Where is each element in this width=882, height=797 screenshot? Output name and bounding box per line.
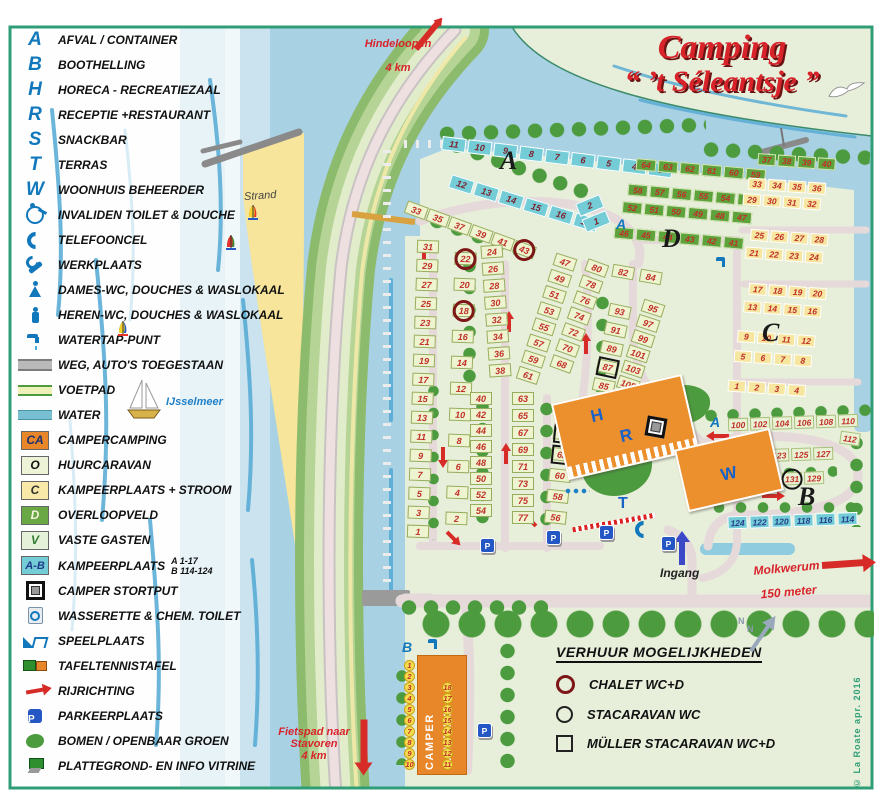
camper-pitch: 13 xyxy=(442,737,453,748)
plot: 17 xyxy=(748,283,767,296)
plot: 12 xyxy=(448,174,475,194)
plot: 63 xyxy=(512,392,534,405)
legend-key xyxy=(12,607,58,624)
plot: 48 xyxy=(470,456,492,469)
parking-icon: P xyxy=(546,530,561,545)
plot: 57 xyxy=(649,185,670,199)
parking-icon: P xyxy=(480,538,495,553)
plot: 54 xyxy=(715,191,736,205)
plot: 40 xyxy=(470,392,492,405)
plot: 36 xyxy=(488,346,511,361)
plot: 31 xyxy=(417,240,439,254)
plot: 13 xyxy=(473,182,500,202)
parking-icon: P xyxy=(661,536,676,551)
legend-icon xyxy=(18,410,52,420)
plot: 49 xyxy=(547,269,572,288)
plot: 54 xyxy=(470,504,492,517)
plot: 69 xyxy=(512,443,534,456)
legend-item: S SNACKBAR xyxy=(12,127,292,152)
plot: 118 xyxy=(793,513,813,527)
plot: 1 xyxy=(727,380,746,393)
plot: 18 xyxy=(768,284,787,297)
parking-icon: P xyxy=(599,525,614,540)
plot-112: 112 xyxy=(839,431,861,447)
plot: 23 xyxy=(414,316,436,330)
direction-arrow xyxy=(504,450,508,464)
legend-item: O HUURCARAVAN xyxy=(12,453,292,478)
plot: 77 xyxy=(512,511,534,524)
plot: 5 xyxy=(596,155,622,172)
plot: 125 xyxy=(791,447,811,461)
plot: 106 xyxy=(794,415,814,429)
legend-item: V VASTE GASTEN xyxy=(12,528,292,553)
plot: 21 xyxy=(745,246,764,259)
building-t-letter: T xyxy=(618,495,628,513)
legend-item: PLATTEGROND- EN INFO VITRINE xyxy=(12,753,292,778)
plot: 6 xyxy=(447,460,469,474)
plot: 75 xyxy=(512,494,534,507)
plot: 67 xyxy=(512,426,534,439)
legend-key: H xyxy=(12,79,58,101)
plot: 53 xyxy=(537,301,562,320)
plot: 24 xyxy=(805,251,824,264)
plot: 30 xyxy=(762,195,781,208)
legend-label: RIJRICHTING xyxy=(58,684,135,698)
plot: 6 xyxy=(754,351,773,364)
plot: 76 xyxy=(573,290,598,310)
boat-slips xyxy=(383,150,391,590)
plot: 116 xyxy=(815,513,835,527)
legend-icon xyxy=(28,607,43,624)
legend-key: T xyxy=(12,154,58,176)
section-c-plots: 37383940 33343536 29303132 25262728 2122… xyxy=(726,152,864,420)
plot: 52 xyxy=(622,201,643,215)
plot: 43 xyxy=(512,240,537,260)
page-title: Camping “ ’t Séleantsje ” xyxy=(578,30,866,97)
plot: 2 xyxy=(747,381,766,394)
legend-item: TELEFOONCEL xyxy=(12,227,292,252)
plot: 3 xyxy=(767,382,786,395)
watertap-icon xyxy=(716,257,728,269)
plot: 55 xyxy=(693,189,714,203)
plot: 70 xyxy=(555,338,580,358)
plot: 25 xyxy=(415,297,437,311)
plot: 15 xyxy=(411,392,433,406)
legend-label: RECEPTIE +RESTAURANT xyxy=(58,108,210,122)
camper-pitch: 2 xyxy=(404,671,415,682)
plot: 23 xyxy=(785,249,804,262)
plot: 36 xyxy=(807,182,826,195)
plot: 16 xyxy=(547,205,574,225)
legend-icon xyxy=(27,333,43,347)
plot: 124 xyxy=(727,516,747,530)
plot: 114 xyxy=(837,512,857,526)
label-stavoren: Fietspad naar Stavoren 4 km xyxy=(268,726,360,762)
legend-key: S xyxy=(12,129,58,151)
plot: 33 xyxy=(748,177,767,190)
plot: 64 xyxy=(636,158,657,172)
camper-pitch: 10 xyxy=(404,759,415,770)
legend-label: CAMPERCAMPING xyxy=(58,433,167,447)
legend-label: KAMPEERPLAATS + STROOM xyxy=(58,483,231,497)
camper-pitch: 6 xyxy=(404,715,415,726)
plot: 59 xyxy=(521,350,546,369)
legend-item: A-B KAMPEERPLAATS A 1-17 B 114-124 xyxy=(12,553,292,578)
boothelling-letter: B xyxy=(402,639,412,655)
plot-row: 100102104106108110 xyxy=(728,414,858,432)
camper-pitch: 3 xyxy=(404,682,415,693)
legend-icon xyxy=(26,687,44,694)
legend-key xyxy=(12,281,58,298)
plot: 35 xyxy=(788,180,807,193)
legend-key xyxy=(12,307,58,324)
plot: 10 xyxy=(467,139,493,156)
plot: 6 xyxy=(570,152,596,169)
section-b-letter: B xyxy=(798,482,815,512)
plot: 1 xyxy=(407,525,429,539)
plot: 120 xyxy=(771,514,791,528)
legend-key: CA xyxy=(12,431,58,450)
plot: 30 xyxy=(484,295,507,310)
plot: 19 xyxy=(788,286,807,299)
legend-item: CA CAMPERCAMPING xyxy=(12,428,292,453)
legend-label: WOONHUIS BEHEERDER xyxy=(58,183,204,197)
plot: 50 xyxy=(666,205,687,219)
plot: 55 xyxy=(532,317,557,336)
camper-pitch: 11 xyxy=(442,759,453,770)
camper-pitch: 4 xyxy=(404,693,415,704)
legend-key xyxy=(12,634,58,648)
legend-icon xyxy=(26,734,44,748)
legend-label: PARKEERPLAATS xyxy=(58,709,163,723)
plot: 3 xyxy=(407,506,429,520)
legend-key: V xyxy=(12,531,58,550)
plot: 21 xyxy=(413,335,435,349)
legend-key xyxy=(12,758,58,773)
plot: 26 xyxy=(482,261,505,276)
compass: N N xyxy=(738,616,780,660)
afval-letter: A xyxy=(710,414,720,430)
camper-pitch: 14 xyxy=(442,726,453,737)
plot: 15 xyxy=(523,197,550,217)
plot: 11 xyxy=(777,333,796,346)
legend-label: DAMES-WC, DOUCHES & WASLOKAAL xyxy=(58,283,285,297)
legend-label: HUURCARAVAN xyxy=(58,458,151,472)
legend-icon xyxy=(23,634,47,648)
plot: 57 xyxy=(526,333,551,352)
legend-item: WASSERETTE & CHEM. TOILET xyxy=(12,603,292,628)
camper-pitch: 1 xyxy=(404,660,415,671)
copyright: © La Roate apr. 2016 xyxy=(852,620,862,788)
plot-row: 29303132 xyxy=(743,193,822,210)
plot: 11 xyxy=(441,136,467,153)
rental-item: STACARAVAN WC xyxy=(556,706,775,723)
legend-item: D OVERLOOPVELD xyxy=(12,503,292,528)
legend-key xyxy=(12,232,58,248)
legend-label: CAMPER STORTPUT xyxy=(58,584,178,598)
plot: 38 xyxy=(489,363,512,378)
plot: 5 xyxy=(408,487,430,501)
plot: 50 xyxy=(470,472,492,485)
legend-key xyxy=(12,581,58,600)
legend-key xyxy=(12,359,58,371)
plot: 8 xyxy=(793,354,812,367)
legend-key: A xyxy=(12,29,58,51)
rental-label: MÜLLER STACARAVAN WC+D xyxy=(587,736,775,751)
camper-pitch: 8 xyxy=(404,737,415,748)
plot: 12 xyxy=(450,382,472,396)
legend-icon xyxy=(27,758,44,773)
plot: 65 xyxy=(512,409,534,422)
plot: 16 xyxy=(803,305,822,318)
plot: 48 xyxy=(709,209,730,223)
plot: 22 xyxy=(454,252,476,266)
plot-column: 4042444648505254 xyxy=(470,392,492,517)
rental-symbol xyxy=(556,675,575,694)
plot: 24 xyxy=(480,244,503,259)
stortput-icon xyxy=(644,415,667,438)
plot-row: 25262728 xyxy=(750,229,829,246)
plot: 51 xyxy=(542,285,567,304)
legend-key: W xyxy=(12,179,58,201)
plot: 5 xyxy=(734,350,753,363)
legend-item: PARKEERPLAATS xyxy=(12,703,292,728)
plot: 42 xyxy=(470,408,492,421)
legend-icon xyxy=(29,307,41,324)
label-ijsselmeer: IJsselmeer xyxy=(166,396,223,408)
plot: 12 xyxy=(797,334,816,347)
plot: 9 xyxy=(737,330,756,343)
legend-icon xyxy=(27,232,43,248)
afval-letter: A xyxy=(616,216,626,232)
legend-item: WATERTAP-PUNT xyxy=(12,328,292,353)
plot: 34 xyxy=(768,179,787,192)
camper-pitch: 17 xyxy=(442,693,453,704)
legend-label: OVERLOOPVELD xyxy=(58,508,158,522)
legend-icon xyxy=(18,385,52,396)
plot: 14 xyxy=(451,356,473,370)
legend-label: VOETPAD xyxy=(58,383,115,397)
plot: 122 xyxy=(749,515,769,529)
plot: 7 xyxy=(544,149,570,166)
plot: 10 xyxy=(449,408,471,422)
plot: 13 xyxy=(411,411,433,425)
legend-item: B BOOTHELLING xyxy=(12,52,292,77)
plot: 100 xyxy=(728,418,748,432)
legend-key xyxy=(12,333,58,347)
plot: 62 xyxy=(679,162,700,176)
plot: 7 xyxy=(773,353,792,366)
plot-row: 5678 xyxy=(734,350,813,367)
plot: 14 xyxy=(498,190,525,210)
plot: 42 xyxy=(701,234,722,248)
plot: 18 xyxy=(453,304,475,318)
legend-label: WATERTAP-PUNT xyxy=(58,333,160,347)
plot-row: 21222324 xyxy=(745,246,824,263)
hedge xyxy=(398,600,548,615)
legend-item: CAMPER STORTPUT xyxy=(12,578,292,603)
legend-label: KAMPEERPLAATS xyxy=(58,559,165,573)
plot: 31 xyxy=(782,196,801,209)
legend-icon xyxy=(26,256,44,274)
plot: 71 xyxy=(512,460,534,473)
plot: 28 xyxy=(810,233,829,246)
plot: 78 xyxy=(578,274,603,294)
legend-icon xyxy=(26,581,45,600)
plot: 16 xyxy=(452,330,474,344)
plot: 28 xyxy=(483,278,506,293)
legend-label: WATER xyxy=(58,408,100,422)
legend-label: PLATTEGROND- EN INFO VITRINE xyxy=(58,759,255,773)
legend-key xyxy=(12,709,58,723)
legend-key: C xyxy=(12,481,58,500)
plot: 61 xyxy=(701,164,722,178)
plot: 20 xyxy=(453,278,475,292)
rental-heading: VERHUUR MOGELIJKHEDEN xyxy=(556,644,762,663)
rental-items: CHALET WC+D STACARAVAN WC MÜLLER STACARA… xyxy=(556,675,775,752)
plot: 60 xyxy=(723,166,744,180)
plot-row: 13141516 xyxy=(743,300,822,317)
legend-label: INVALIDEN TOILET & DOUCHE xyxy=(58,208,235,222)
plot: 112 xyxy=(839,431,861,447)
legend-label: TAFELTENNISTAFEL xyxy=(58,659,177,673)
legend-key xyxy=(12,385,58,396)
windsurfer-icon xyxy=(246,204,260,221)
legend-item: SPEELPLAATS xyxy=(12,628,292,653)
camper-pitch: 16 xyxy=(442,704,453,715)
plot: 110 xyxy=(838,414,858,428)
legend-key xyxy=(12,659,58,672)
legend-label: SNACKBAR xyxy=(58,133,127,147)
legend-item: TAFELTENNISTAFEL xyxy=(12,653,292,678)
sailboat-icon xyxy=(126,378,162,422)
legend-label: AFVAL / CONTAINER xyxy=(58,33,177,47)
legend-item: H HORECA - RECREATIEZAAL xyxy=(12,77,292,102)
plot: 39 xyxy=(797,156,816,169)
plot-row: 33343536 xyxy=(748,177,827,194)
section-d-letter: D xyxy=(662,224,681,254)
label-molkwerum: Molkwerum 150 meter xyxy=(740,546,834,602)
plot: 26 xyxy=(770,230,789,243)
legend-label: HORECA - RECREATIEZAAL xyxy=(58,83,221,97)
legend-label: BOMEN / OPENBAAR GROEN xyxy=(58,734,229,748)
legend-key: D xyxy=(12,506,58,525)
plot: 44 xyxy=(470,424,492,437)
legend-label: TERRAS xyxy=(58,158,107,172)
section-a-letter: A xyxy=(500,146,517,176)
legend-icon xyxy=(28,709,42,723)
camper-pitch: 9 xyxy=(404,748,415,759)
plot: 27 xyxy=(415,278,437,292)
plot: 4 xyxy=(446,486,468,500)
camper-label: CAMPER xyxy=(424,660,436,770)
plot: 43 xyxy=(679,232,700,246)
camper-pitch: 18 xyxy=(442,682,453,693)
legend-key xyxy=(12,734,58,748)
plot: 87 xyxy=(596,358,620,375)
plot: 72 xyxy=(561,322,586,342)
legend-icon xyxy=(26,206,44,224)
plot: 13 xyxy=(743,300,762,313)
legend-label: VASTE GASTEN xyxy=(58,533,150,547)
legend-label: WEG, AUTO'S TOEGESTAAN xyxy=(58,358,223,372)
plot: 51 xyxy=(644,203,665,217)
legend-item: BOMEN / OPENBAAR GROEN xyxy=(12,728,292,753)
legend-item: R RECEPTIE +RESTAURANT xyxy=(12,102,292,127)
rental-item: CHALET WC+D xyxy=(556,675,775,694)
legend-item: WEG, AUTO'S TOEGESTAAN xyxy=(12,353,292,378)
legend-label: TELEFOONCEL xyxy=(58,233,147,247)
camper-pitch-column: 12345678910 xyxy=(404,660,415,770)
legend-item: A AFVAL / CONTAINER xyxy=(12,27,292,52)
plot: 8 xyxy=(448,434,470,448)
legend-item: DAMES-WC, DOUCHES & WASLOKAAL xyxy=(12,277,292,302)
camper-pitch: 12 xyxy=(442,748,453,759)
plot-column: 6365676971737577 xyxy=(512,392,534,524)
plot: 40 xyxy=(817,157,836,170)
phone-icon xyxy=(635,521,651,537)
direction-arrow xyxy=(441,447,445,461)
legend-key xyxy=(12,689,58,693)
legend-label: HEREN-WC, DOUCHES & WASLOKAAL xyxy=(58,308,283,322)
plot: 15 xyxy=(783,303,802,316)
watertap-icon xyxy=(428,639,440,651)
legend-key xyxy=(12,410,58,420)
camper-pitch-column: 1817161514131211 xyxy=(442,682,453,770)
legend-label: WASSERETTE & CHEM. TOILET xyxy=(58,609,240,623)
windsurfer-icon xyxy=(224,234,238,251)
rental-symbol xyxy=(556,735,573,752)
plot: 32 xyxy=(485,312,508,327)
legend-key: B xyxy=(12,54,58,76)
plot-row: 1234 xyxy=(727,380,806,397)
plot: 17 xyxy=(412,373,434,387)
legend-icon xyxy=(23,659,47,672)
legend-item: C KAMPEERPLAATS + STROOM xyxy=(12,478,292,503)
plot: 32 xyxy=(802,197,821,210)
plot: 37 xyxy=(757,153,776,166)
rental-label: STACARAVAN WC xyxy=(587,707,700,722)
plot: 11 xyxy=(410,430,432,444)
plot: 46 xyxy=(470,440,492,453)
label-ingang: Ingang xyxy=(660,566,699,580)
plot: 45 xyxy=(635,228,656,242)
plot: 8 xyxy=(519,146,545,163)
plot: 38 xyxy=(777,155,796,168)
campsite-map: A AFVAL / CONTAINER B BOOTHELLING H HORE… xyxy=(0,0,882,797)
plot: 14 xyxy=(763,302,782,315)
legend-key: O xyxy=(12,456,58,475)
legend-label: SPEELPLAATS xyxy=(58,634,144,648)
rental-item: MÜLLER STACARAVAN WC+D xyxy=(556,735,775,752)
camper-pitch: 5 xyxy=(404,704,415,715)
legend-key: A-B xyxy=(12,556,58,575)
direction-arrow xyxy=(584,340,588,354)
plot: 25 xyxy=(750,229,769,242)
plot: 108 xyxy=(816,415,836,429)
plot: 91 xyxy=(604,321,628,338)
legend-key xyxy=(12,206,58,224)
section-c-letter: C xyxy=(762,318,779,348)
legend-key xyxy=(12,256,58,274)
rental-label: CHALET WC+D xyxy=(589,677,684,692)
plot: 89 xyxy=(600,340,624,357)
plot: 7 xyxy=(409,468,431,482)
plot: 19 xyxy=(413,354,435,368)
arrow-stavoren xyxy=(361,720,368,764)
label-strand: Strand xyxy=(244,189,277,203)
plot: 29 xyxy=(743,193,762,206)
